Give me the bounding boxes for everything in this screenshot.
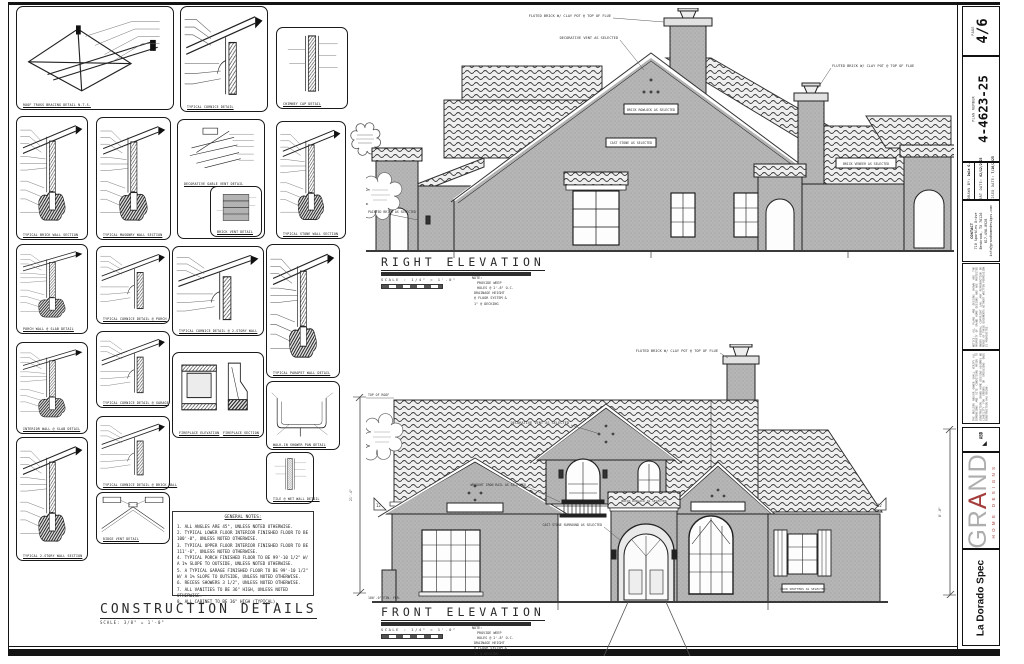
detail-box-inner: BRICK VENT DETAIL [210,186,262,237]
titleblock-plan-number: PLAN NUMBER 4-4623-25 [962,56,1000,162]
detail-box: TYPICAL 2-STORY WALL SECTION [16,437,88,561]
leader-lines [604,602,690,656]
entry-porch [608,492,680,602]
detail-box: INTERIOR WALL @ SLAB DETAIL [16,342,88,434]
sheet-border-top [8,2,1000,5]
titleblock-contact: CONTACT 710 Sparkles Drive Benbrook, TX … [962,200,1000,262]
construction-details-scale: SCALE: 3/8" = 1'-0" [100,620,317,625]
detail-caption: BRICK VENT DETAIL [217,230,253,234]
badge-letters: ABD [980,434,984,439]
front-elevation-heading: FRONT ELEVATION SCALE : 1/4" = 1'-0" [381,601,551,639]
detail-caption: CHIMNEY CAP DETAIL [283,102,321,106]
detail-caption: TYPICAL STONE WALL SECTION [283,232,338,236]
detail-box: DECORATIVE GABLE VENT DETAIL BRICK VENT … [177,119,265,239]
title-bar [381,622,531,626]
titleblock-disclaimer-2: THE BUILDER AND/OR OWNER SHALL VERIFY AL… [962,350,1000,424]
detail-box: TYPICAL CORNICE DETAIL @ 2-STORY WALL [172,246,264,336]
detail-sketch-brick [213,189,259,227]
detail-sketch-cornice [175,249,261,326]
detail-caption: TYPICAL MASONRY WALL SECTION [103,233,162,237]
revised-date-cell: REVISED DATE: 7/16/2025 [988,163,999,199]
detail-sketch-cornice [99,334,167,398]
construction-details-title: CONSTRUCTION DETAILS [100,602,317,619]
detail-caption: TYPICAL PARAPET WALL DETAIL [273,371,330,375]
plan-number-value: 4-4623-25 [976,75,991,143]
disclaimer-text-2: THE BUILDER AND/OR OWNER SHALL VERIFY AL… [973,353,990,421]
detail-caption: FIREPLACE SECTION [223,431,259,435]
page-value: 4/6 [975,18,991,43]
logo-text: ND [964,453,992,491]
note-line: 1" @ DECKING [472,302,514,307]
detail-caption: TYPICAL CORNICE DETAIL @ PORCH [103,317,167,321]
drawn-by-value: Dale G. [967,163,971,176]
right-elevation-note: NOTE: PROVIDE WEEP HOLES @ 2'-8" O.C. DR… [472,276,514,307]
badge-logo-icon: ◣ [980,441,989,446]
general-notes: GENERAL NOTES: 1. ALL ANGLES ARE 45°, UN… [172,511,314,596]
detail-sketch-cornice [99,249,167,314]
general-note: 2. TYPICAL LOWER FLOOR INTERIOR FINISHED… [177,530,309,543]
logo-accent-letter: A [964,491,992,509]
front-elevation-title: FRONT ELEVATION [381,605,545,621]
general-note: 3. TYPICAL UPPER FLOOR INTERIOR FINISHED… [177,543,309,556]
details-dimension: 21'-4" [352,394,366,596]
detail-box: RIDGE VENT DETAIL [96,492,170,544]
detail-sketch-truss [19,9,171,100]
annotation-label: DECORATIVE VENT AS SELECTED [560,36,618,40]
drawn-by-cell: DRAWN BY: Dale G. [963,163,975,199]
titleblock-logo: GRAND HOME DESIGNS [962,452,1000,549]
note-line: 1" @ DECKING [472,652,514,657]
front-elevation-scale: SCALE : 1/4" = 1'-0" [381,627,551,632]
detail-sketch-chimney [279,30,345,99]
graphic-scale-bar [381,284,443,289]
detail-sketch-wall [99,120,168,230]
detail-caption: INTERIOR WALL @ SLAB DETAIL [23,427,80,431]
dimension-text: 21'-4" [349,489,353,501]
disclaimer-text-1: NOTICE: ALL PLANS AND DESIGNS SHOWN ARE … [973,267,990,347]
page-rotated: PAGE 4/6 [971,18,991,43]
detail-sketch-cornice [183,9,265,102]
annotation-label: BRICK VENEER AS SELECTED [843,162,889,166]
detail-caption: TYPICAL CORNICE DETAIL @ GARAGE [103,401,169,405]
drawn-by: DRAWN BY: Dale G. [967,163,971,199]
annotation-label: PAINTED BRICK AS SELECTED [368,210,416,214]
start-date-value: 02/12/2025 [979,158,983,177]
title-bar [381,272,531,276]
detail-caption: ROOF TRUSS BRACING DETAIL N.T.S. [23,103,91,107]
dimension-line [942,426,956,598]
detail-sketch-wall [279,124,343,229]
detail-caption: RIDGE VENT DETAIL [103,537,139,541]
construction-details-heading: CONSTRUCTION DETAILS SCALE: 3/8" = 1'-0" [100,598,317,625]
detail-sketch-wall [19,119,85,230]
detail-caption: FIREPLACE ELEVATION [179,431,219,435]
top-of-roof-note: TOP OF ROOF [368,393,389,397]
annotation-label: WROUGHT IRON RAIL AS SELECTED [470,483,526,487]
detail-sketch-wall [19,440,85,551]
detail-box: PORCH WALL @ SLAB DETAIL [16,244,88,334]
revised-date-value: 7/16/2025 [991,156,995,173]
annotation-label: FLUTED BRICK W/ CLAY POT @ TOP OF FLUE [636,349,718,353]
detail-sketch-shower [269,384,337,440]
detail-box: TYPICAL CORNICE DETAIL @ PORCH [96,246,170,324]
detail-sketch-ridge [99,495,167,534]
general-note: 1. ALL ANGLES ARE 45°, UNLESS NOTED OTHE… [177,524,309,530]
badge-rotated: ◣ABD [972,434,991,446]
contact-block: CONTACT 710 Sparkles Drive Benbrook, TX … [969,205,993,256]
annotation-label: CAST STONE AS SELECTED [610,141,652,145]
detail-box: TYPICAL PARAPET WALL DETAIL [266,244,340,378]
detail-caption: TYPICAL CORNICE DETAIL @ 2-STORY WALL [179,329,257,333]
logo-text: GR [964,509,992,549]
annotation-label: DECORATIVE VENT AS SELECTED [511,421,569,425]
annotation-label: WOOD SHUTTERS AS SELECTED [780,587,825,591]
detail-box: TYPICAL BRICK WALL SECTION [16,116,88,240]
front-elevation-dimension: 8'-0" [942,426,956,598]
grand-logo: GRAND HOME DESIGNS [967,453,996,548]
pitch-value: 12 [376,503,381,508]
detail-sketch-wall [19,247,85,324]
detail-caption: TYPICAL CORNICE DETAIL [187,105,234,109]
detail-sketch-wetwall [269,455,311,494]
front-elevation-note: NOTE: PROVIDE WEEP HOLES @ 2'-8" O.C. DR… [472,626,514,657]
plan-rotated: PLAN NUMBER 4-4623-25 [972,75,991,143]
general-notes-title: GENERAL NOTES: [177,515,309,522]
drawn-by-label: DRAWN BY: [967,178,971,199]
detail-box: ROOF TRUSS BRACING DETAIL N.T.S. [16,6,174,110]
detail-sketch-wall [269,247,337,368]
titleblock-badge: ◣ABD [962,427,1000,452]
dimension-line [352,394,366,596]
chimney [723,344,759,402]
revised-date: REVISED DATE: 7/16/2025 [991,156,995,206]
graphic-scale-bar [381,634,443,639]
titleblock-dates: DRAWN BY: Dale G. START DATE: 02/12/2025… [962,162,1000,200]
detail-box: CHIMNEY CAP DETAIL [276,27,348,109]
titleblock-project: La Dorado Spec [962,549,1000,646]
detail-sketch-fireplace [175,355,261,428]
logo-subtitle: HOME DESIGNS [990,453,995,548]
right-elevation-title: RIGHT ELEVATION [381,255,545,271]
start-date: START DATE: 02/12/2025 [979,158,983,205]
detail-box: TILE @ WET WALL DETAIL [266,452,314,504]
dimension-text: 8'-0" [938,507,942,517]
general-note: 6. RECESS SHOWERS 3 1/2", UNLESS NOTED O… [177,580,309,586]
detail-box: TYPICAL CORNICE DETAIL @ BRICK WALL [96,416,170,490]
right-elevation-scale: SCALE : 1/4" = 1'-0" [381,277,551,282]
annotation-label: CAST STONE SURROUND AS SELECTED [543,523,603,527]
annotation-label: FLUTED BRICK W/ CLAY POT @ TOP OF FLUE [832,64,914,68]
detail-caption: TYPICAL 2-STORY WALL SECTION [23,554,82,558]
contact-email: info@grandhomedesigns.com [988,205,993,256]
start-date-cell: START DATE: 02/12/2025 [975,163,987,199]
detail-box: WALK-IN SHOWER PAN DETAIL [266,381,340,450]
detail-box: TYPICAL MASONRY WALL SECTION [96,117,171,240]
titleblock-disclaimer-1: NOTICE: ALL PLANS AND DESIGNS SHOWN ARE … [962,263,1000,350]
detail-sketch-vent [180,122,262,177]
annotation-label: FLUTED BRICK W/ CLAY POT @ TOP OF FLUE [529,14,611,18]
detail-caption: WALK-IN SHOWER PAN DETAIL [273,443,326,447]
titleblock-page: PAGE 4/6 [962,6,1000,56]
right-elevation-drawing: FLUTED BRICK W/ CLAY POT @ TOP OF FLUE D… [366,8,954,258]
detail-caption: PORCH WALL @ SLAB DETAIL [23,327,74,331]
general-note: 4. TYPICAL PORCH FINISHED FLOOR TO BE 99… [177,555,309,568]
detail-box: FIREPLACE ELEVATION FIREPLACE SECTION [172,352,264,438]
annotation-label: BRICK ROWLOCK AS SELECTED [621,499,666,503]
detail-box: TYPICAL STONE WALL SECTION [276,121,346,239]
detail-caption: TYPICAL BRICK WALL SECTION [23,233,78,237]
detail-box: TYPICAL CORNICE DETAIL @ GARAGE [96,331,170,408]
project-name: La Dorado Spec [976,559,987,635]
pitch-value: 12 [877,503,882,508]
detail-sketch-wall [19,345,85,424]
detail-caption: TILE @ WET WALL DETAIL [273,497,320,501]
fin-floor-note: 100'-0" FIN. FLR. [368,596,401,600]
general-note: 5. A TYPICAL GARAGE FINISHED FLOOR TO BE… [177,568,309,581]
annotation-label: BRICK ROWLOCK AS SELECTED [627,108,675,112]
detail-caption: TYPICAL CORNICE DETAIL @ BRICK WALL [103,483,177,487]
sheet-border-left [8,2,9,649]
detail-box: TYPICAL CORNICE DETAIL [180,6,268,112]
right-elevation-heading: RIGHT ELEVATION SCALE : 1/4" = 1'-0" [381,251,551,289]
detail-sketch-cornice [99,419,167,480]
